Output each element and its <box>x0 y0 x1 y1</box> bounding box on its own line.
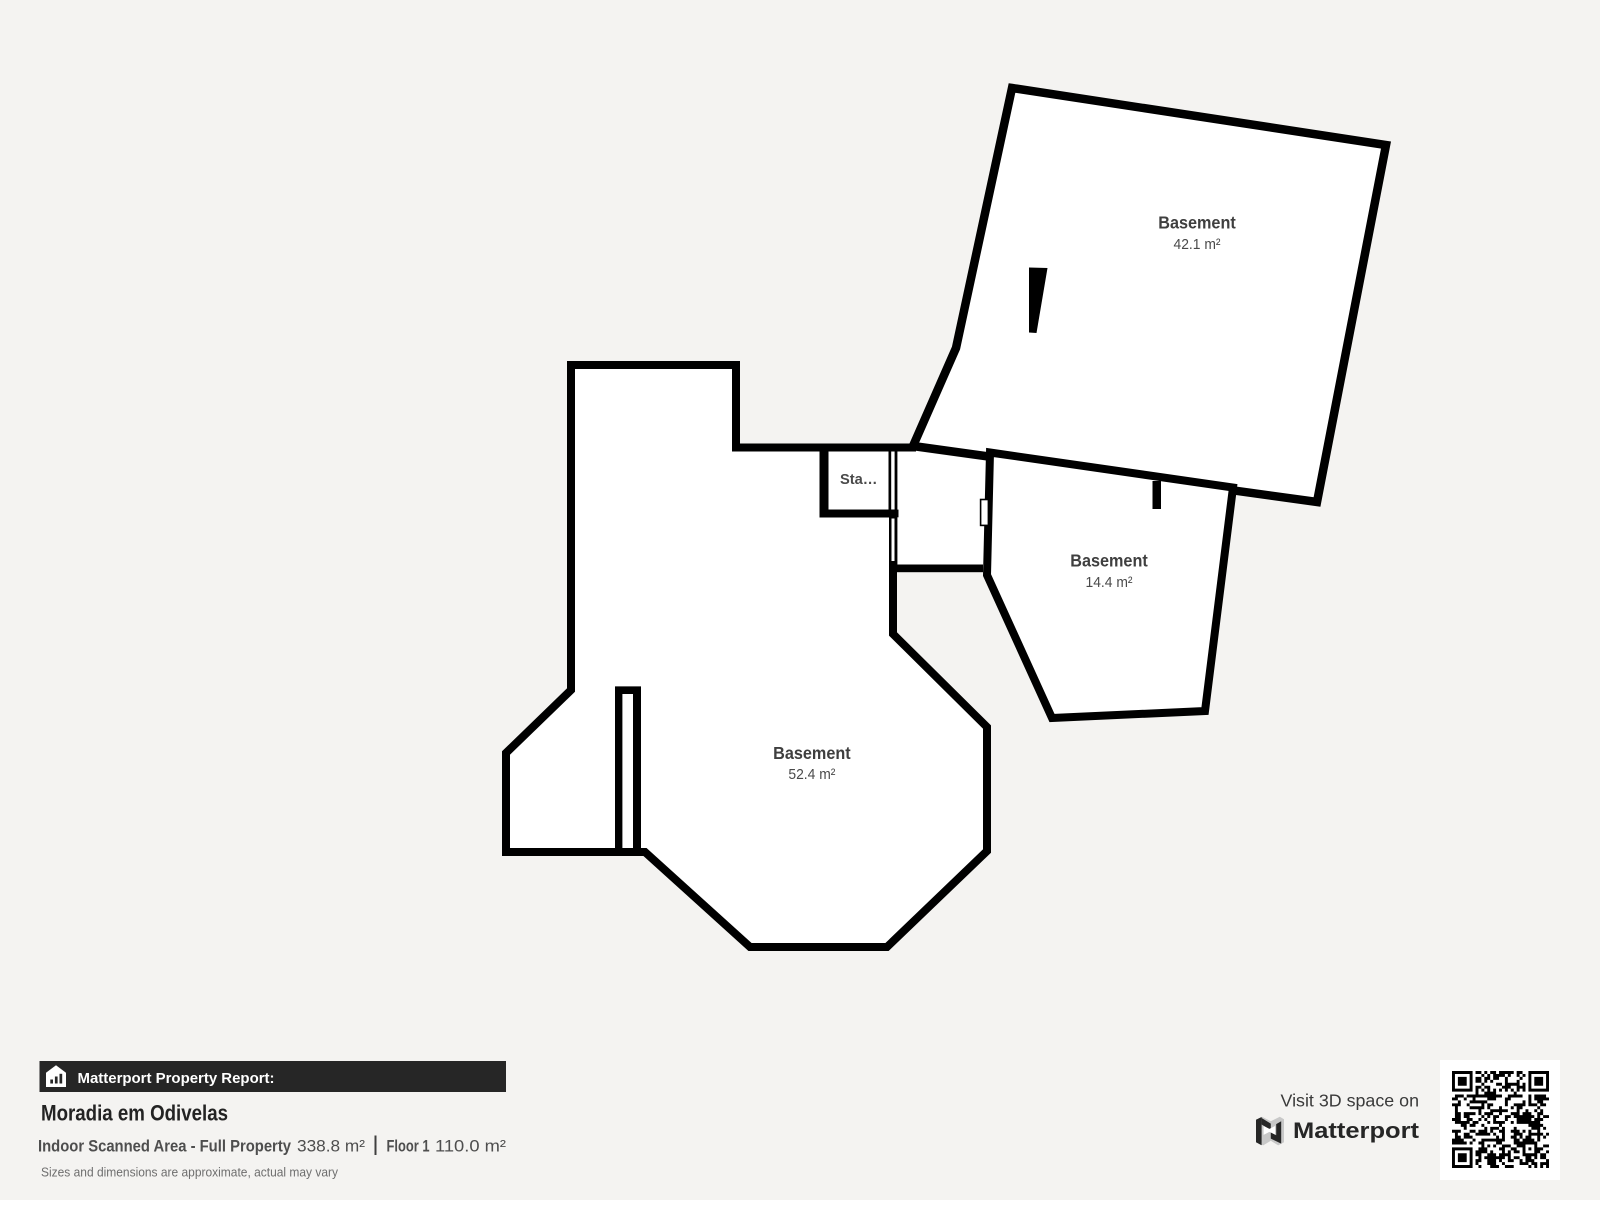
svg-text:Visit 3D space on: Visit 3D space on <box>1281 1091 1420 1111</box>
svg-text:14.4 m²: 14.4 m² <box>1086 574 1133 591</box>
svg-text:Basement: Basement <box>773 743 851 763</box>
svg-text:Basement: Basement <box>1158 213 1236 233</box>
svg-text:Matterport: Matterport <box>1293 1118 1420 1143</box>
svg-text:Matterport Property Report:: Matterport Property Report: <box>78 1070 275 1087</box>
svg-text:Basement: Basement <box>1070 550 1148 570</box>
svg-text:42.1 m²: 42.1 m² <box>1174 236 1221 253</box>
svg-text:Sta…: Sta… <box>840 471 878 488</box>
svg-text:52.4 m²: 52.4 m² <box>788 766 835 783</box>
svg-text:110.0 m²: 110.0 m² <box>435 1137 506 1156</box>
svg-text:Floor 1: Floor 1 <box>387 1137 430 1156</box>
svg-text:Indoor Scanned Area - Full Pro: Indoor Scanned Area - Full Property <box>38 1137 291 1156</box>
svg-text:338.8 m²: 338.8 m² <box>297 1137 365 1156</box>
svg-text:Sizes and dimensions are appro: Sizes and dimensions are approximate, ac… <box>41 1164 338 1179</box>
svg-text:Moradia em Odivelas: Moradia em Odivelas <box>41 1101 228 1126</box>
